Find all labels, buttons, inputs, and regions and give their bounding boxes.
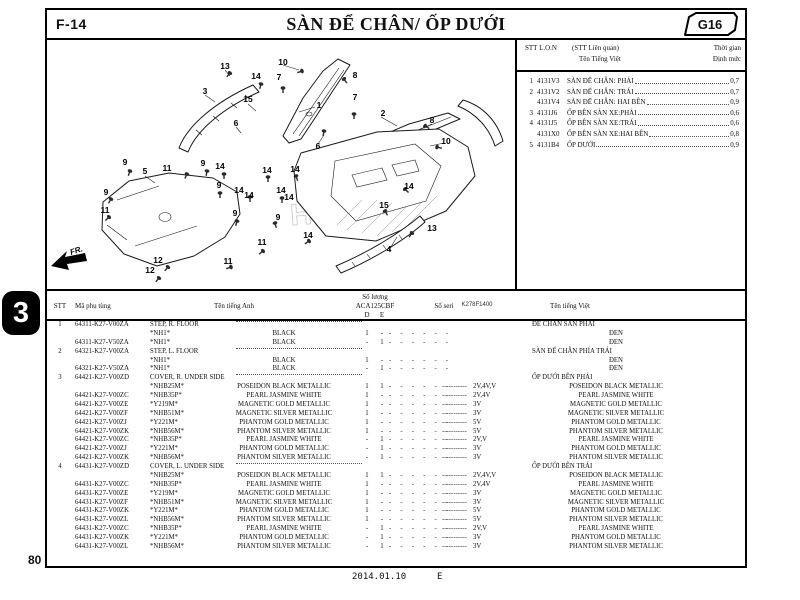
row-part-code: 64421-K27-V00ZK	[75, 454, 129, 463]
row-dash-filler: - - - - - -	[389, 507, 449, 516]
row-color-name-en: BLACK	[199, 330, 369, 339]
parts-table-row: 64421-K27-V00ZE*Y219M*MAGNETIC GOLD META…	[47, 401, 745, 410]
row-color-code: *NHB25M*	[150, 472, 184, 481]
row-dash-run: -----------	[442, 428, 467, 437]
diagram-callout: 5	[143, 166, 148, 176]
diagram-callout: 3	[203, 86, 208, 96]
diagram-callout: 9	[233, 208, 238, 218]
diagram-callout: 4	[387, 244, 392, 254]
row-color-name-en: PHANTOM GOLD METALLIC	[199, 507, 369, 516]
row-dash-run: -----------	[442, 490, 467, 499]
ref-row-name: ỐP BÊN SÀN XE:TRÁI	[567, 118, 637, 129]
row-qty-e: 1	[374, 472, 390, 481]
part-side-sill-left	[458, 100, 503, 146]
row-color-name-en: PEARL JASMINE WHITE	[199, 525, 369, 534]
page-footer: 2014.01.10 E	[0, 572, 800, 586]
row-qty-d: -	[359, 445, 375, 454]
row-qty-d: -	[359, 543, 375, 552]
row-color-code: *NHB51M*	[150, 410, 184, 419]
row-qty-e: -	[374, 392, 390, 401]
row-part-code: 64421-K27-V00ZE	[75, 401, 128, 410]
ref-table-row: 34131J6ỐP BÊN SÀN XE:PHẢI0,6	[517, 108, 747, 119]
diagram-callout: 8	[430, 115, 435, 125]
row-serial: 3V	[473, 534, 481, 543]
row-dash-filler: - - - - - -	[389, 392, 449, 401]
row-name-en: STEP, L. FLOOR	[150, 348, 198, 357]
parts-table-row: 164311-K27-V00ZASTEP, R. FLOORĐỂ CHÂN SÀ…	[47, 321, 745, 330]
catalog-page: F-14 SÀN ĐỂ CHÂN/ ỐP DƯỚI G16 HONDA	[45, 8, 747, 568]
labor-time-table: STT L.O.N (STT Liên quan) Thời gian Tên …	[517, 40, 747, 289]
row-color-code: *NHB35P*	[150, 392, 182, 401]
row-name-en: STEP, R. FLOOR	[150, 321, 199, 330]
row-color-name-en: PEARL JASMINE WHITE	[199, 436, 369, 445]
row-qty-d: 1	[359, 383, 375, 392]
dotted-leader	[596, 140, 729, 148]
row-dash-filler: - - - - - -	[389, 490, 449, 499]
parts-table-row: 64431-K27-V00ZK*Y221M*PHANTOM GOLD METAL…	[47, 534, 745, 543]
row-dash-filler: - - - - - -	[389, 454, 449, 463]
row-name-en: COVER, L. UNDER SIDE	[150, 463, 224, 472]
row-color-name-en: POSEIDON BLACK METALLIC	[199, 472, 369, 481]
row-qty-d: 1	[359, 481, 375, 490]
row-dash-run: -----------	[442, 525, 467, 534]
ref-table-row: 14131V3SÀN ĐỂ CHÂN: PHẢI0,7	[517, 76, 747, 87]
row-dash-run: -----------	[442, 534, 467, 543]
page-title: SÀN ĐỂ CHÂN/ ỐP DƯỚI	[47, 14, 745, 35]
row-color-name-vi: PHANTOM SILVER METALLIC	[502, 428, 730, 437]
row-part-code: 64431-K27-V00ZL	[75, 516, 128, 525]
row-serial: 5V	[473, 516, 481, 525]
ref-row-time: 0,6	[730, 108, 739, 119]
diagram-callout: 14	[251, 71, 260, 81]
ref-row-stt: 5	[517, 140, 533, 151]
row-dash-filler: - - - - - -	[389, 436, 449, 445]
row-color-name-vi: PHANTOM GOLD METALLIC	[502, 445, 730, 454]
row-part-code: 64421-K27-V00ZK	[75, 428, 129, 437]
row-color-name-vi: ĐEN	[502, 339, 730, 348]
dotted-leader	[236, 321, 362, 322]
row-qty-e: 1	[374, 445, 390, 454]
parts-table-row: 64321-K27-V50ZA*NH1*BLACK-1- - - - - -ĐE…	[47, 365, 745, 374]
parts-table-row: *NH1*BLACK1-- - - - - -ĐEN	[47, 330, 745, 339]
ref-row-name: SÀN ĐỂ CHÂN: PHẢI	[567, 76, 634, 87]
row-dash-filler: - - - - - -	[389, 525, 449, 534]
row-color-code: *Y221M*	[150, 419, 178, 428]
row-color-name-vi: PHANTOM SILVER METALLIC	[502, 543, 730, 552]
diagram-callout: 7	[353, 92, 358, 102]
ref-row-time: 0,9	[730, 97, 739, 108]
row-color-name-en: MAGNETIC SILVER METALLIC	[199, 499, 369, 508]
row-qty-d: 1	[359, 330, 375, 339]
ref-row-code: 4131V2	[537, 87, 567, 98]
row-serial: 5V	[473, 428, 481, 437]
row-qty-e: -	[374, 499, 390, 508]
row-color-name-en: PEARL JASMINE WHITE	[199, 481, 369, 490]
dotted-leader	[647, 97, 730, 105]
diagram-callout: 11	[224, 256, 233, 266]
row-qty-e: -	[374, 410, 390, 419]
row-color-name-en: POSEIDON BLACK METALLIC	[199, 383, 369, 392]
diagram-callout: 8	[353, 70, 358, 80]
row-qty-d: 1	[359, 499, 375, 508]
parts-table-row: 64421-K27-V00ZK*NHB56M*PHANTOM SILVER ME…	[47, 454, 745, 463]
row-serial: 3V	[473, 454, 481, 463]
row-qty-e: 1	[374, 525, 390, 534]
diagram-callout: 9	[201, 158, 206, 168]
ref-row-name: ỐP BÊN SÀN XE:HAI BÊN	[567, 129, 648, 140]
row-color-name-vi: MAGNETIC SILVER METALLIC	[502, 499, 730, 508]
row-qty-e: -	[374, 419, 390, 428]
row-serial: 2V,V	[473, 525, 487, 534]
row-dash-filler: - - - - - -	[389, 534, 449, 543]
row-color-code: *NHB35P*	[150, 525, 182, 534]
row-serial: 2V,4V,V	[473, 383, 496, 392]
row-dash-run: -----------	[442, 454, 467, 463]
row-qty-e: -	[374, 428, 390, 437]
ref-table-row: 4131X0ỐP BÊN SÀN XE:HAI BÊN0,8	[517, 129, 747, 140]
ref-table-rows: 14131V3SÀN ĐỂ CHÂN: PHẢI0,724131V2SÀN ĐỂ…	[517, 76, 747, 150]
diagram-callout: 14	[244, 190, 253, 200]
ref-row-code: 4131J6	[537, 108, 567, 119]
ref-row-code: 4131X0	[537, 129, 567, 140]
diagram-callout: 14	[284, 192, 293, 202]
row-color-name-vi: PEARL JASMINE WHITE	[502, 525, 730, 534]
parts-table-row: 64431-K27-V00ZC*NHB35P*PEARL JASMINE WHI…	[47, 525, 745, 534]
row-name-en: COVER, R. UNDER SIDE	[150, 374, 225, 383]
col-name-vi: Tên tiếng Việt	[513, 302, 627, 310]
parts-table-row: 64421-K27-V00ZC*NHB35P*PEARL JASMINE WHI…	[47, 392, 745, 401]
row-color-name-vi: PEARL JASMINE WHITE	[502, 436, 730, 445]
row-color-name-vi: PEARL JASMINE WHITE	[502, 481, 730, 490]
row-serial: 2V,4V	[473, 392, 490, 401]
row-qty-e: -	[374, 357, 390, 366]
row-part-code: 64421-K27-V00ZF	[75, 410, 128, 419]
diagram-callout: 14	[404, 181, 413, 191]
row-qty-e: -	[374, 507, 390, 516]
plate-code-badge: G16	[681, 11, 739, 38]
parts-table-row: *NH1*BLACK1-- - - - - -ĐEN	[47, 357, 745, 366]
ref-row-time: 0,6	[730, 118, 739, 129]
ref-row-time: 0,9	[730, 140, 739, 151]
ref-table-row: 24131V2SÀN ĐỂ CHÂN: TRÁI0,7	[517, 87, 747, 98]
ref-table-row: 44131J5ỐP BÊN SÀN XE:TRÁI0,6	[517, 118, 747, 129]
row-qty-e: 1	[374, 365, 390, 374]
row-dash-filler: - - - - - -	[389, 419, 449, 428]
parts-table-row: 64431-K27-V00ZC*NHB35P*PEARL JASMINE WHI…	[47, 481, 745, 490]
ref-col-stt: STT L.O.N	[525, 44, 557, 52]
diagram-callout: 11	[258, 237, 267, 247]
row-dash-filler: - - - - - -	[389, 543, 449, 552]
dotted-leader	[236, 374, 362, 375]
row-color-code: *Y221M*	[150, 534, 178, 543]
row-qty-e: -	[374, 401, 390, 410]
row-dash-run: -----------	[442, 410, 467, 419]
diagram-callout: 11	[163, 163, 172, 173]
diagram-callout: 12	[145, 265, 154, 275]
parts-table-row: 264321-K27-V00ZASTEP, L. FLOORSÀN ĐỂ CHÂ…	[47, 348, 745, 357]
row-dash-filler: - - - - - -	[389, 516, 449, 525]
row-dash-filler: - - - - - -	[389, 383, 449, 392]
row-color-code: *Y221M*	[150, 507, 178, 516]
row-qty-d: 1	[359, 507, 375, 516]
row-qty-d: 1	[359, 419, 375, 428]
row-serial: 2V,4V,V	[473, 472, 496, 481]
row-part-code: 64421-K27-V00ZD	[75, 374, 129, 383]
row-color-name-en: PHANTOM GOLD METALLIC	[199, 419, 369, 428]
row-color-code: *NHB56M*	[150, 428, 184, 437]
row-part-code: 64431-K27-V00ZD	[75, 463, 129, 472]
row-name-vi: ỐP DƯỚI BÊN TRÁI	[532, 463, 592, 472]
ref-row-code: 4131J5	[537, 118, 567, 129]
parts-table-row: 64431-K27-V00ZK*Y221M*PHANTOM GOLD METAL…	[47, 507, 745, 516]
ref-table-row: 4131V4SÀN ĐỂ CHÂN: HAI BÊN0,9	[517, 97, 747, 108]
col-part-code: Mã phụ tùng	[75, 302, 111, 310]
row-dash-run: -----------	[442, 516, 467, 525]
row-part-code: 64421-K27-V00ZC	[75, 392, 129, 401]
parts-table-row: 64431-K27-V00ZL*NHB56M*PHANTOM SILVER ME…	[47, 543, 745, 552]
row-stt: 4	[47, 463, 73, 472]
row-color-code: *Y221M*	[150, 445, 178, 454]
row-part-code: 64421-K27-V00ZJ	[75, 445, 127, 454]
row-color-name-vi: POSEIDON BLACK METALLIC	[502, 383, 730, 392]
diagram-callout: 9	[123, 157, 128, 167]
ref-row-stt	[517, 129, 533, 140]
row-color-code: *NHB56M*	[150, 516, 184, 525]
row-part-code: 64311-K27-V00ZA	[75, 321, 129, 330]
row-color-name-en: BLACK	[199, 357, 369, 366]
diagram-callout: 14	[234, 185, 243, 195]
ref-row-name: ỐP BÊN SÀN XE:PHẢI	[567, 108, 637, 119]
row-part-code: 64321-K27-V00ZA	[75, 348, 129, 357]
row-part-code: 64431-K27-V00ZK	[75, 507, 129, 516]
row-dash-run: -----------	[442, 472, 467, 481]
row-color-name-vi: PEARL JASMINE WHITE	[502, 392, 730, 401]
col-serial: Số seri	[409, 302, 479, 310]
section-tab: 3	[2, 291, 40, 335]
col-stt: STT	[47, 302, 73, 310]
row-dash-run: -----------	[442, 436, 467, 445]
row-qty-d: 1	[359, 357, 375, 366]
parts-table-row: *NHB25M*POSEIDON BLACK METALLIC11- - - -…	[47, 472, 745, 481]
dotted-leader	[638, 118, 730, 126]
diagram-callout: 10	[441, 136, 450, 146]
ref-row-stt: 3	[517, 108, 533, 119]
row-dash-run: -----------	[442, 419, 467, 428]
diagram-callout: 14	[290, 164, 299, 174]
row-dash-filler: - - - - - -	[389, 481, 449, 490]
row-qty-d: -	[359, 454, 375, 463]
row-part-code: 64311-K27-V50ZA	[75, 339, 129, 348]
diagram-callout: 14	[303, 230, 312, 240]
row-part-code: 64421-K27-V00ZC	[75, 436, 129, 445]
row-color-name-en: PEARL JASMINE WHITE	[199, 392, 369, 401]
row-color-name-en: PHANTOM SILVER METALLIC	[199, 454, 369, 463]
row-color-name-en: PHANTOM SILVER METALLIC	[199, 516, 369, 525]
col-e: E	[374, 311, 390, 319]
row-color-code: *NHB35P*	[150, 436, 182, 445]
diagram-callout: 14	[215, 161, 224, 171]
row-qty-e: -	[374, 516, 390, 525]
row-dash-run: -----------	[442, 392, 467, 401]
footer-revision: E	[437, 572, 442, 582]
row-color-name-vi: PHANTOM GOLD METALLIC	[502, 419, 730, 428]
ref-row-stt: 4	[517, 118, 533, 129]
ref-row-code: 4131B4	[537, 140, 567, 151]
row-color-code: *Y219M*	[150, 490, 178, 499]
row-color-code: *NHB25M*	[150, 383, 184, 392]
diagram-callout: 6	[316, 141, 321, 151]
ref-row-code: 4131V4	[537, 97, 567, 108]
row-qty-d: 1	[359, 516, 375, 525]
row-stt: 3	[47, 374, 73, 383]
row-color-code: *NHB56M*	[150, 543, 184, 552]
row-color-name-vi: PHANTOM SILVER METALLIC	[502, 516, 730, 525]
row-qty-e: -	[374, 481, 390, 490]
row-qty-d: 1	[359, 392, 375, 401]
parts-table-row: 64421-K27-V00ZC*NHB35P*PEARL JASMINE WHI…	[47, 436, 745, 445]
row-color-name-en: MAGNETIC GOLD METALLIC	[199, 490, 369, 499]
row-color-code: *NHB51M*	[150, 499, 184, 508]
row-dash-run: -----------	[442, 543, 467, 552]
ref-row-code: 4131V3	[537, 76, 567, 87]
ref-row-time: 0,7	[730, 76, 739, 87]
row-stt: 1	[47, 321, 73, 330]
col-d: D	[359, 311, 375, 319]
row-dash-filler: - - - - - -	[389, 410, 449, 419]
row-serial: 2V,4V	[473, 481, 490, 490]
row-dash-run: -----------	[442, 383, 467, 392]
ref-col-time: Thời gian	[714, 44, 741, 52]
row-dash-run: -----------	[442, 445, 467, 454]
row-part-code: 64431-K27-V00ZK	[75, 534, 129, 543]
row-qty-d: -	[359, 339, 375, 348]
row-part-code: 64421-K27-V00ZJ	[75, 419, 127, 428]
row-dash-run: -----------	[442, 401, 467, 410]
row-color-name-vi: ĐEN	[502, 330, 730, 339]
diagram-callout: 14	[262, 165, 271, 175]
row-color-name-vi: MAGNETIC GOLD METALLIC	[502, 401, 730, 410]
row-dash-run: -----------	[442, 499, 467, 508]
diagram-callout: 6	[234, 118, 239, 128]
row-color-name-vi: PHANTOM GOLD METALLIC	[502, 534, 730, 543]
footer-date: 2014.01.10	[352, 572, 406, 582]
row-dash-run: -----------	[442, 507, 467, 516]
parts-table-row: 64421-K27-V00ZK*NHB56M*PHANTOM SILVER ME…	[47, 428, 745, 437]
row-dash-filler: - - - - - -	[389, 330, 449, 339]
page-number: 80	[28, 553, 41, 567]
row-color-code: *NH1*	[150, 339, 170, 348]
row-name-vi: ĐỂ CHÂN SÀN PHẢI	[532, 321, 595, 330]
ref-row-stt: 2	[517, 87, 533, 98]
row-qty-e: 1	[374, 436, 390, 445]
row-serial: 3V	[473, 401, 481, 410]
parts-table-row: 64431-K27-V00ZE*Y219M*MAGNETIC GOLD META…	[47, 490, 745, 499]
diagram-callout: 15	[243, 94, 252, 104]
row-name-vi: ỐP DƯỚI BÊN PHẢI	[532, 374, 592, 383]
row-serial: 2V,V	[473, 436, 487, 445]
row-serial: 3V	[473, 499, 481, 508]
ref-table-row: 54131B4ỐP DƯỚI0,9	[517, 140, 747, 151]
row-dash-run: -----------	[442, 481, 467, 490]
parts-table-row: 64421-K27-V00ZJ*Y221M*PHANTOM GOLD METAL…	[47, 419, 745, 428]
col-name-en: Tên tiếng Anh	[177, 302, 291, 310]
diagram-callout: 15	[379, 200, 388, 210]
ref-row-time: 0,7	[730, 87, 739, 98]
row-qty-d: 1	[359, 490, 375, 499]
row-dash-filler: - - - - - -	[389, 365, 449, 374]
row-color-code: *NH1*	[150, 365, 170, 374]
row-color-code: *NHB35P*	[150, 481, 182, 490]
ref-row-name: SÀN ĐỂ CHÂN: TRÁI	[567, 87, 634, 98]
ref-col-quota: Định mức	[713, 55, 741, 63]
row-serial: 5V	[473, 507, 481, 516]
row-qty-e: -	[374, 490, 390, 499]
row-color-code: *NH1*	[150, 330, 170, 339]
row-qty-e: 1	[374, 339, 390, 348]
row-part-code: 64431-K27-V00ZC	[75, 525, 129, 534]
row-qty-e: 1	[374, 383, 390, 392]
diagram-callout: 9	[104, 187, 109, 197]
row-qty-d: -	[359, 525, 375, 534]
row-color-name-en: BLACK	[199, 365, 369, 374]
row-serial: 5V	[473, 419, 481, 428]
diagram-callout: 9	[276, 212, 281, 222]
row-dash-filler: - - - - - -	[389, 401, 449, 410]
row-dash-filler: - - - - - -	[389, 428, 449, 437]
parts-table-row: 64421-K27-V00ZJ*Y221M*PHANTOM GOLD METAL…	[47, 445, 745, 454]
row-qty-e: -	[374, 330, 390, 339]
diagram-callout: 1	[317, 100, 322, 110]
row-qty-d: -	[359, 365, 375, 374]
dotted-leader	[635, 76, 730, 84]
row-qty-e: 1	[374, 454, 390, 463]
row-color-name-en: MAGNETIC SILVER METALLIC	[199, 410, 369, 419]
row-dash-filler: - - - - - -	[389, 445, 449, 454]
parts-table-row: 64431-K27-V00ZL*NHB56M*PHANTOM SILVER ME…	[47, 516, 745, 525]
parts-table-row: 64431-K27-V00ZF*NHB51M*MAGNETIC SILVER M…	[47, 499, 745, 508]
row-part-code: 64431-K27-V00ZL	[75, 543, 128, 552]
row-color-name-en: PHANTOM SILVER METALLIC	[199, 543, 369, 552]
row-part-code: 64431-K27-V00ZF	[75, 499, 128, 508]
row-serial: 3V	[473, 445, 481, 454]
col-quantity: Số lượng	[340, 293, 410, 301]
row-name-vi: SÀN ĐỂ CHÂN PHÍA TRÁI	[532, 348, 612, 357]
row-qty-d: 1	[359, 472, 375, 481]
row-qty-d: -	[359, 534, 375, 543]
row-qty-d: 1	[359, 401, 375, 410]
row-color-name-vi: POSEIDON BLACK METALLIC	[502, 472, 730, 481]
row-color-name-en: PHANTOM GOLD METALLIC	[199, 445, 369, 454]
diagram-callout: 10	[278, 57, 287, 67]
row-stt: 2	[47, 348, 73, 357]
row-serial: 3V	[473, 490, 481, 499]
row-qty-d: -	[359, 436, 375, 445]
row-dash-filler: - - - - - -	[389, 472, 449, 481]
row-color-name-en: BLACK	[199, 339, 369, 348]
row-color-name-en: PHANTOM SILVER METALLIC	[199, 428, 369, 437]
plate-code: G16	[681, 17, 739, 32]
row-color-name-vi: PHANTOM GOLD METALLIC	[502, 507, 730, 516]
dotted-leader	[236, 348, 362, 349]
dotted-leader	[649, 129, 729, 137]
parts-table-row: 64311-K27-V50ZA*NH1*BLACK-1- - - - - -ĐE…	[47, 339, 745, 348]
row-color-name-vi: PHANTOM SILVER METALLIC	[502, 454, 730, 463]
ref-col-related: (STT Liên quan)	[572, 44, 619, 52]
row-color-code: *NH1*	[150, 357, 170, 366]
col-model: ACA125CBF	[340, 302, 410, 310]
row-qty-e: 1	[374, 534, 390, 543]
diagram-callout: 13	[427, 223, 436, 233]
